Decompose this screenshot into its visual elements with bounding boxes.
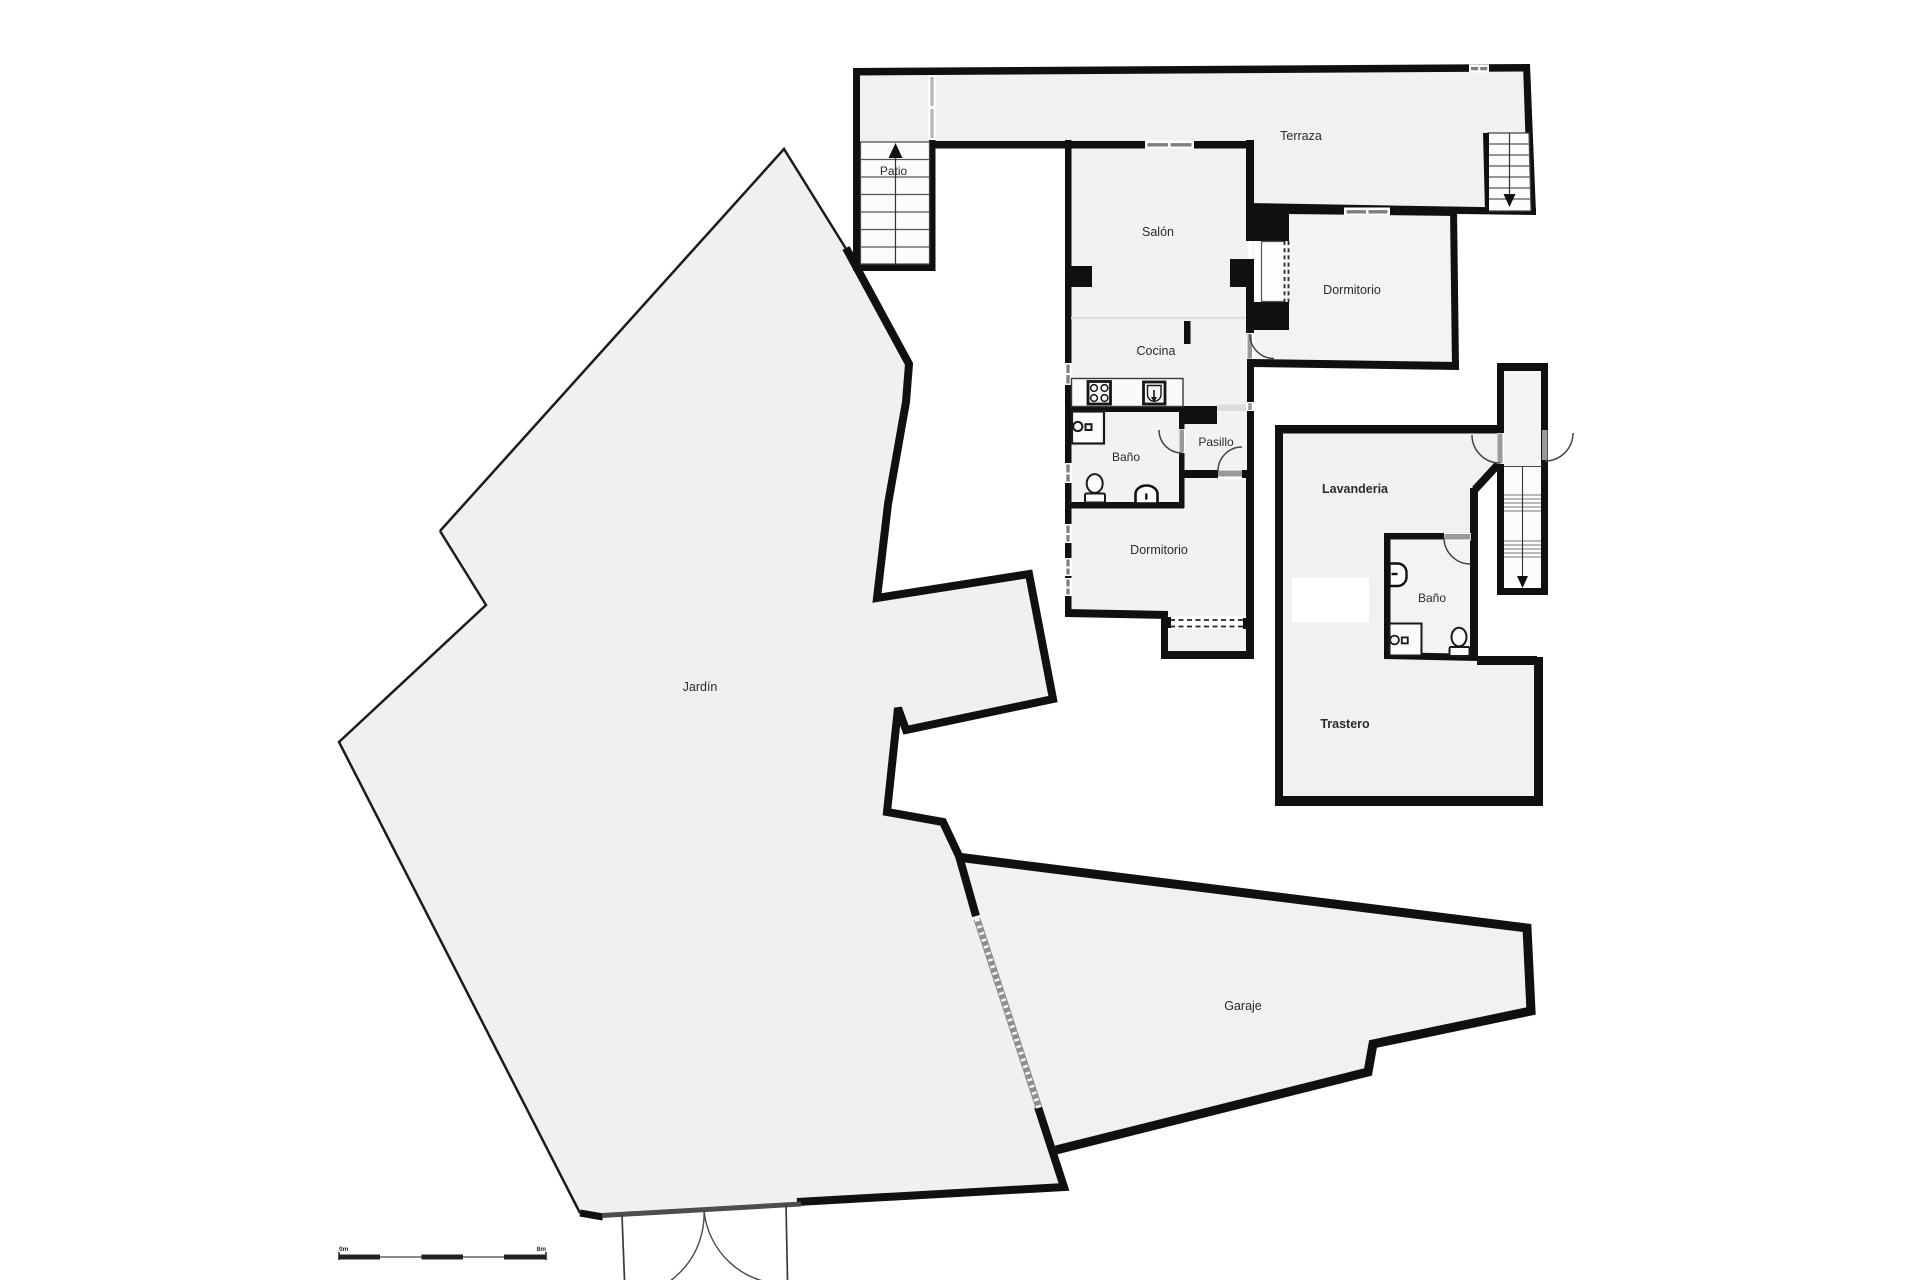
svg-text:Lavanderia: Lavanderia (1322, 482, 1389, 496)
svg-text:Jardín: Jardín (683, 680, 718, 694)
svg-text:Salón: Salón (1142, 225, 1174, 239)
svg-text:Baño: Baño (1112, 450, 1140, 464)
svg-text:Patio: Patio (880, 164, 908, 178)
svg-text:Pasillo: Pasillo (1198, 435, 1234, 449)
svg-text:Trastero: Trastero (1320, 717, 1370, 731)
svg-text:Cocina: Cocina (1137, 344, 1176, 358)
svg-text:Baño: Baño (1418, 591, 1446, 605)
svg-text:Dormitorio: Dormitorio (1323, 283, 1381, 297)
svg-text:0m: 0m (339, 1246, 349, 1253)
svg-text:Terraza: Terraza (1280, 129, 1322, 143)
svg-text:Garaje: Garaje (1224, 999, 1262, 1013)
svg-text:8m: 8m (537, 1246, 547, 1253)
svg-text:Dormitorio: Dormitorio (1130, 543, 1188, 557)
